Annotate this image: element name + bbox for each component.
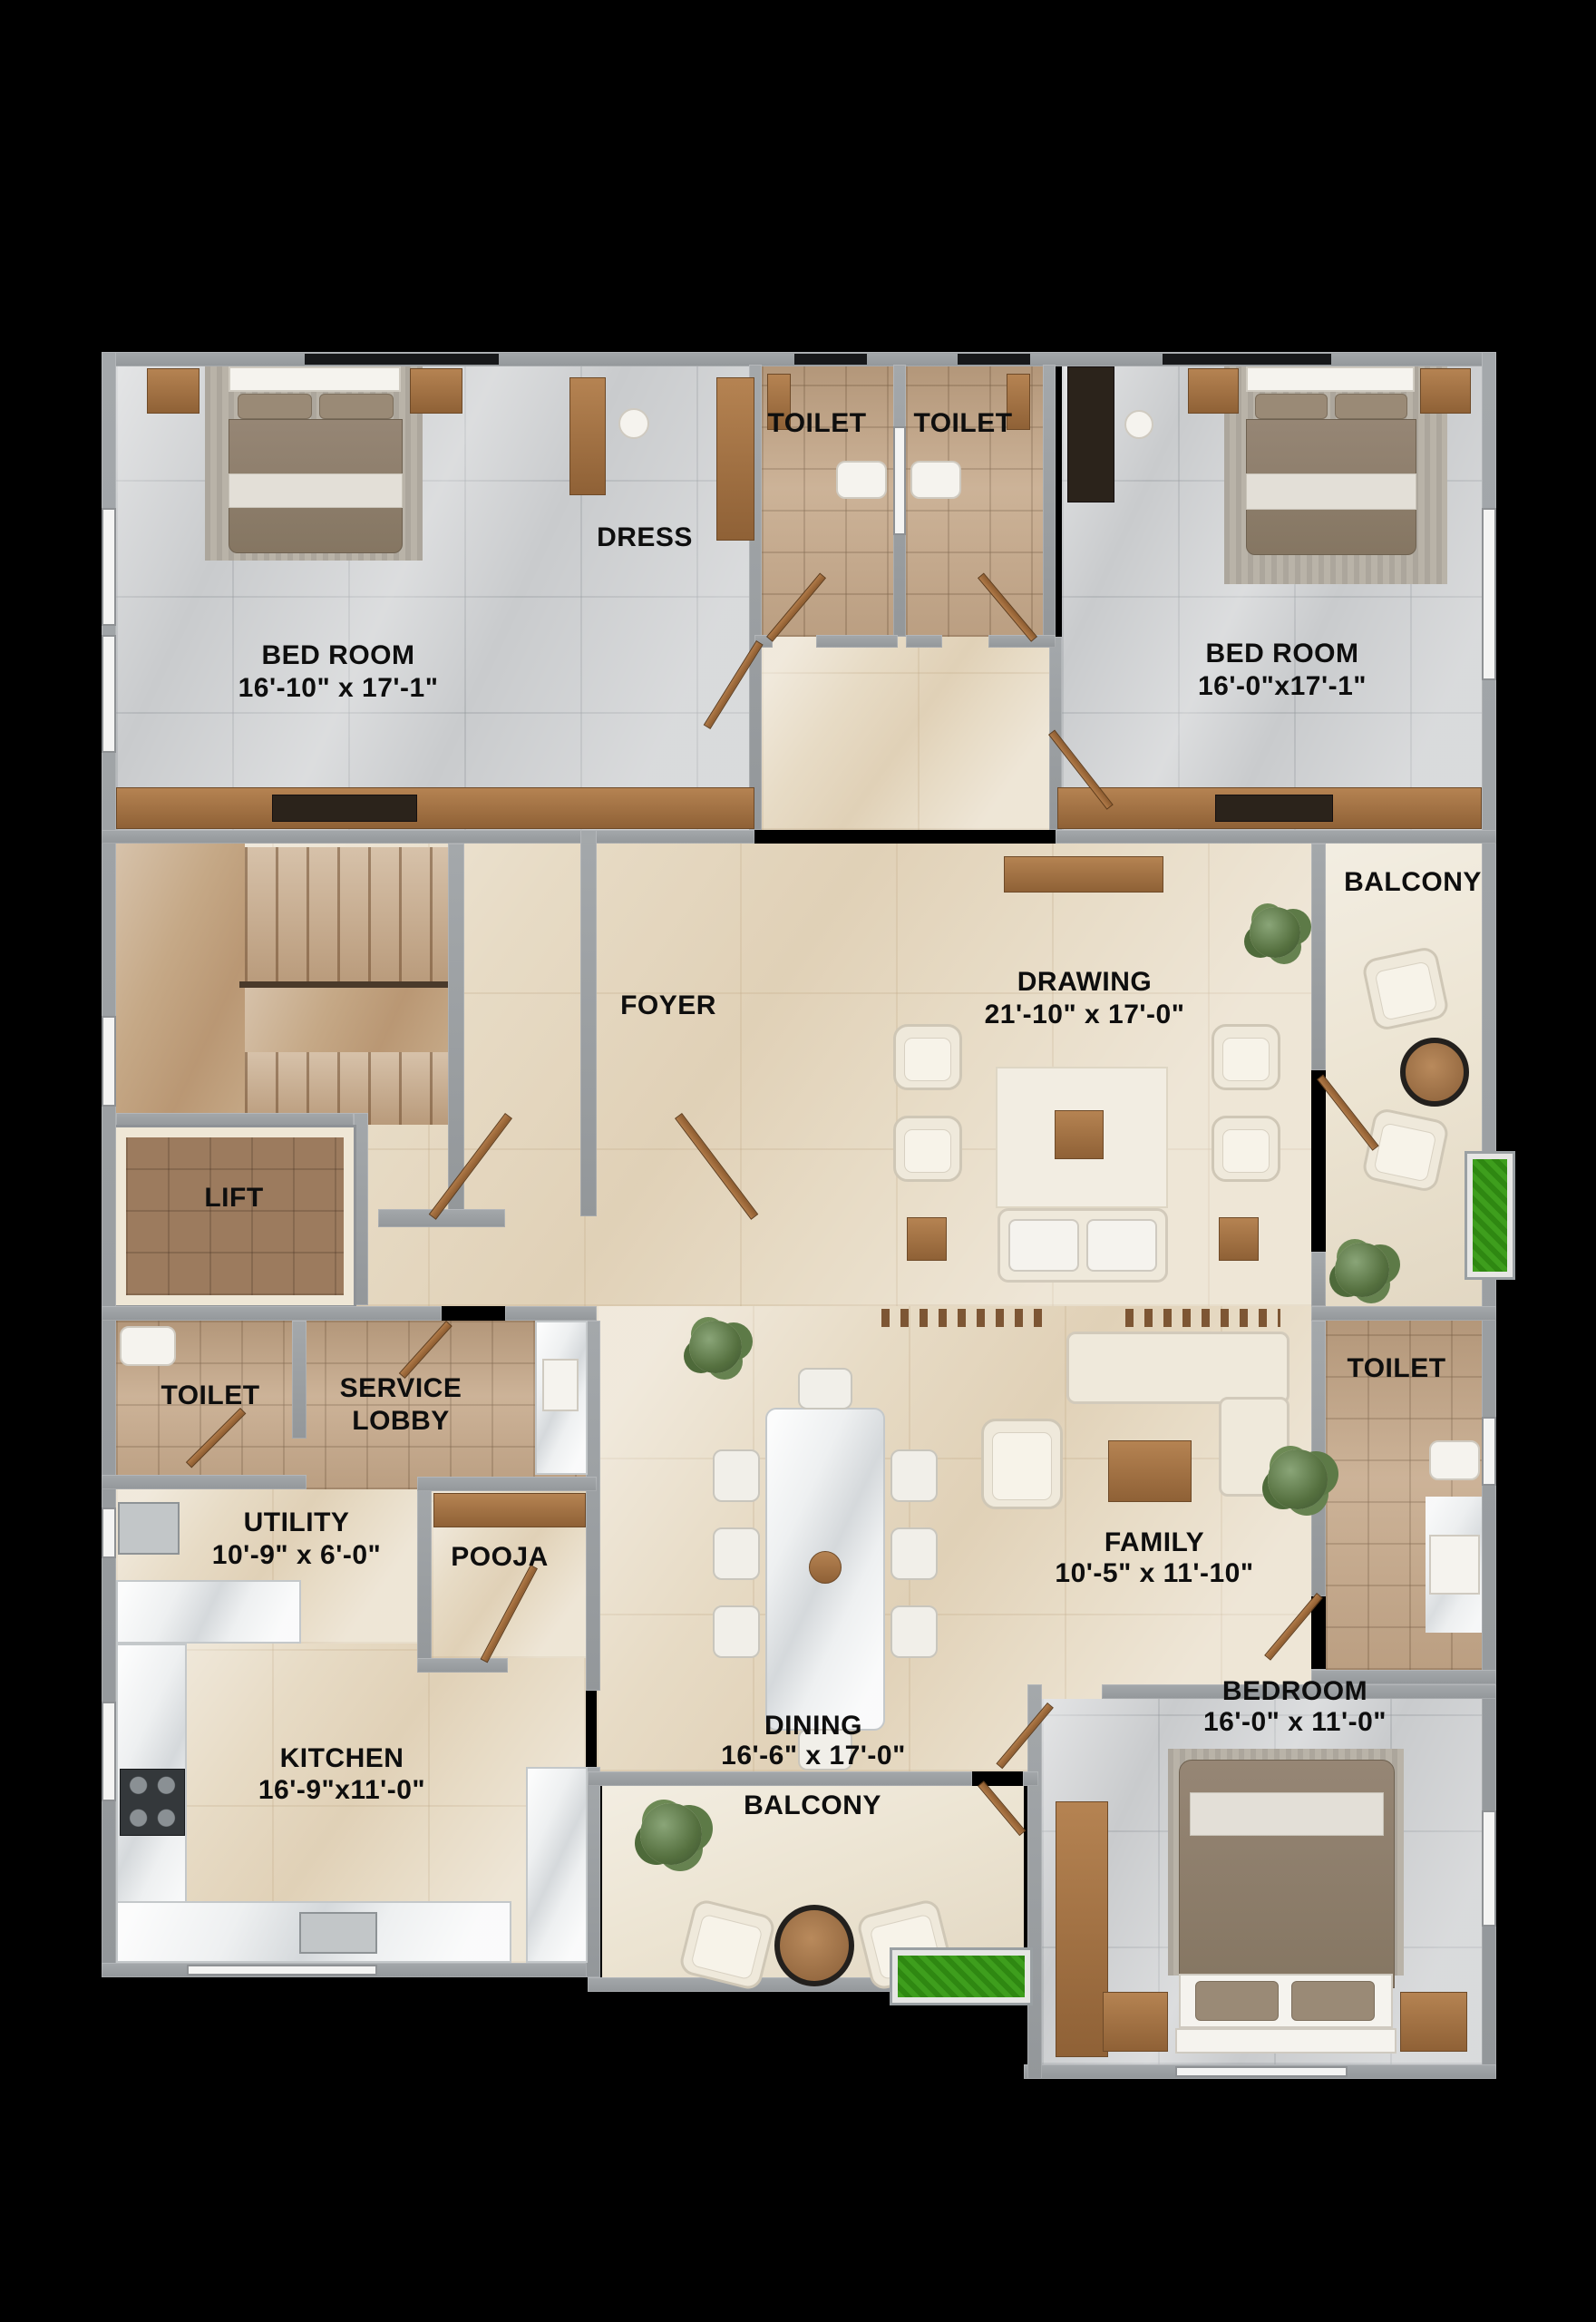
dining-centerpiece [809,1551,842,1584]
stair-landing-left [116,844,245,1125]
window [102,1507,116,1558]
toilet-fixture [120,1326,176,1366]
label-drawing: DRAWING [1017,967,1153,998]
armchair [981,1419,1063,1509]
sectional-sofa [1066,1332,1289,1404]
label-service-lobby-line2: LOBBY [352,1406,450,1437]
bed-headboard [229,366,401,392]
nightstand [1188,368,1239,414]
armchair [893,1024,962,1090]
corridor-top-floor [762,637,1056,830]
nightstand [1103,1992,1168,2052]
window [1482,1417,1496,1486]
balcony-table [774,1905,854,1986]
nightstand [410,368,462,414]
balcony-table [1400,1038,1469,1107]
toilet-fixture [910,461,961,499]
stair-railing [239,981,448,988]
bed-pillow [1255,394,1328,419]
label-dining: DINING [764,1711,862,1741]
vanity [1429,1535,1480,1595]
window [1175,2066,1348,2077]
wall-balcony-right-a [1311,844,1326,1070]
bed-pillow [1335,394,1407,419]
pooja-shelf [433,1493,586,1527]
dining-chair [890,1605,938,1658]
label-toilet-right: TOILET [1347,1353,1445,1384]
kitchen-sink [299,1912,377,1954]
floor-plan: BED ROOM 16'-10" x 17'-1" DRESS TOILET T… [0,0,1596,2322]
planter [892,1950,1030,2003]
label-family: FAMILY [1105,1527,1204,1558]
dining-chair [798,1368,852,1410]
bed-pillow [1291,1981,1375,2021]
label-bedroom-top-right: BED ROOM [1206,639,1359,669]
wall-toilet-right-top [1311,1306,1496,1321]
bed-throw [1190,1792,1384,1836]
sofa-cushion [1008,1219,1079,1272]
planter [1467,1154,1513,1277]
wall-toilet-left-bottom [102,1475,307,1489]
wall-pooja-bottom [417,1658,508,1673]
label-bedroom-bottom-right-dims: 16'-0" x 11'-0" [1203,1707,1387,1738]
toilet-divider-partition [893,426,906,535]
desk-stool [1124,410,1153,439]
window-lintel [1163,354,1331,365]
wood-slat-partition [1125,1309,1280,1327]
balcony-chair [1361,1107,1451,1194]
wall-balcony-right-b [1311,1252,1326,1306]
window-lintel [794,354,867,365]
service-sink [542,1359,579,1411]
bed-headboard [1175,2028,1396,2054]
plant [1335,1243,1389,1297]
wall-bedroom-br-left [1027,1684,1042,2079]
side-table [1219,1217,1259,1261]
nightstand [1400,1992,1467,2052]
label-family-dims: 10'-5" x 11'-10" [1055,1558,1253,1589]
nightstand [147,368,199,414]
balcony-chair [1361,945,1451,1032]
dresser [1215,795,1333,822]
label-lift: LIFT [204,1183,263,1214]
label-drawing-dims: 21'-10" x 17'-0" [985,1000,1185,1030]
wall-bedrooms-bottom-left [102,830,754,844]
label-utility: UTILITY [244,1507,350,1538]
label-utility-dims: 10'-9" x 6'-0" [212,1540,381,1571]
stove [120,1769,185,1836]
wall [988,635,1056,648]
wall-dining-balcony-b [1023,1771,1038,1786]
plant [1250,907,1300,958]
stair-mid-landing [245,985,448,1052]
wall-pooja-top [417,1477,597,1491]
label-bedroom-top-left-dims: 16'-10" x 17'-1" [238,673,439,704]
bed-throw [229,473,403,508]
label-toilet-left: TOILET [161,1381,259,1411]
wall [116,1113,354,1127]
side-table [907,1217,947,1261]
dining-chair [713,1449,760,1502]
label-toilet-top-1: TOILET [767,408,866,439]
nightstand [1420,368,1471,414]
label-pooja: POOJA [451,1542,549,1573]
window [102,635,116,753]
wall [354,1113,368,1305]
room-lift-floor [116,1127,354,1305]
armchair [1212,1024,1280,1090]
label-balcony-bottom: BALCONY [744,1790,881,1821]
bed-pillow [238,394,312,419]
dress-wardrobe [569,377,606,495]
wall [292,1321,307,1439]
label-kitchen-dims: 16'-9"x11'-0" [258,1775,425,1806]
window-lintel [305,354,499,365]
label-bedroom-top-right-dims: 16'-0"x17'-1" [1198,671,1367,702]
plant [1268,1449,1328,1509]
label-bedroom-bottom-right: BEDROOM [1222,1676,1367,1707]
window [187,1965,377,1976]
plant [640,1803,702,1865]
label-kitchen: KITCHEN [280,1743,404,1774]
armchair [1212,1116,1280,1182]
dress-stool [618,408,649,439]
plant [689,1321,742,1373]
wall-service-top-a [102,1306,442,1321]
bed-throw [1246,473,1416,510]
wardrobe [1056,1801,1108,2057]
coffee-table [1055,1110,1104,1159]
wall-bedrooms-bottom-right [1056,830,1496,844]
window-lintel [958,354,1030,365]
wall-service-top-b [505,1306,597,1321]
dining-chair [890,1527,938,1580]
wall [906,635,942,648]
utility-sink [118,1502,180,1555]
coffee-table [1108,1440,1192,1502]
label-toilet-top-2: TOILET [913,408,1012,439]
wall [816,635,898,648]
window [1482,1810,1496,1927]
wall [1043,365,1056,637]
label-service-lobby-line1: SERVICE [340,1373,462,1404]
wall-kitchen-dining-a [586,1321,600,1691]
bed-pillow [319,394,394,419]
window [102,1016,116,1107]
wardrobe [116,787,754,829]
wall-pooja-left [417,1477,432,1673]
bed-headboard [1246,366,1415,392]
window [102,508,116,626]
console-table [1004,856,1163,893]
kitchen-counter [526,1767,588,1963]
label-balcony-right: BALCONY [1344,867,1482,898]
sofa-cushion [1086,1219,1157,1272]
dining-chair [890,1449,938,1502]
stair-flight-upper [245,847,448,985]
toilet-fixture [836,461,887,499]
label-dining-dims: 16'-6" x 17'-0" [721,1741,906,1771]
window [102,1702,116,1801]
label-foyer: FOYER [620,990,716,1021]
dining-chair [713,1527,760,1580]
kitchen-counter [116,1580,301,1644]
desk [1067,366,1114,502]
dining-chair [713,1605,760,1658]
toilet-fixture [1429,1440,1480,1480]
wall-foyer-left [580,830,597,1216]
tv-unit [272,795,417,822]
bed-pillow [1195,1981,1279,2021]
label-bedroom-top-left: BED ROOM [262,640,415,671]
wall-kitchen-dining-b [586,1767,600,1977]
wall-stair-right [448,844,464,1216]
window [1482,508,1496,680]
wall-dining-balcony-a [588,1771,972,1786]
armchair [893,1116,962,1182]
dress-wardrobe [716,377,754,541]
label-dress: DRESS [597,522,693,553]
wood-slat-partition [881,1309,1046,1327]
